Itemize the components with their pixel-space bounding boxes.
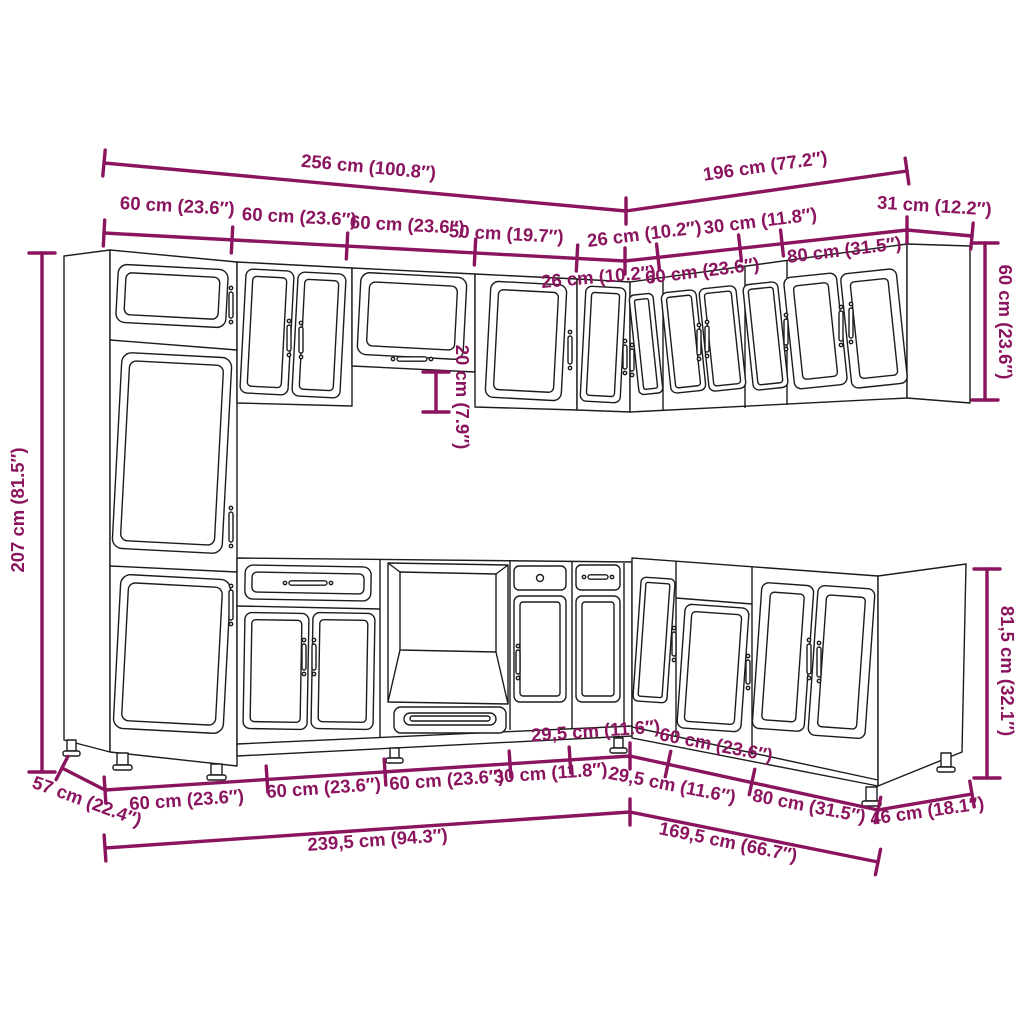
dim-label-base-height-right: 81,5 cm (32.1″) [997, 606, 1018, 736]
cabinet-leg [386, 748, 403, 763]
door-handle [229, 286, 233, 323]
dim-label-wall-height-right: 60 cm (23.6″) [995, 265, 1016, 380]
dim-line-tall-height [29, 253, 55, 772]
cabinet-leg [113, 753, 132, 770]
dim-label-base-60-a: 60 cm (23.6″) [129, 785, 245, 814]
base-cabinet-right-side [878, 564, 966, 786]
door-handle [807, 638, 811, 679]
oven-cavity-back [400, 572, 496, 652]
tall-top-door [116, 264, 229, 328]
cabinet-leg [207, 764, 226, 780]
dim-line-wall-gap [423, 372, 449, 412]
dim-line-base-height-right [974, 569, 1000, 778]
base-60a-door-left [243, 612, 309, 729]
door-handle [568, 330, 572, 369]
kitchen-cabinet-dimension-diagram: 256 cm (100.8″)196 cm (77.2″)60 cm (23.6… [0, 0, 1024, 1024]
door-handle [302, 638, 306, 675]
door-handle [229, 506, 233, 547]
oven-drawer-slot-bar [410, 716, 490, 721]
diagram-canvas: 256 cm (100.8″)196 cm (77.2″)60 cm (23.6… [0, 0, 1024, 1024]
dim-label-wall-gap: 20 cm (7.9″) [452, 345, 473, 450]
door-handle [839, 305, 843, 346]
wall-cabinet-right-side [907, 244, 970, 403]
tall-middle-door [112, 352, 232, 553]
base-60R-door [677, 604, 749, 732]
door-handle [516, 644, 520, 679]
dim-label-run-left-total: 256 cm (100.8″) [300, 150, 437, 183]
door-handle [746, 654, 750, 689]
dim-label-wall-60-b: 60 cm (23.6″) [241, 203, 357, 230]
dim-label-base-total-right: 169,5 cm (66.7″) [657, 817, 799, 866]
door-handle [784, 313, 788, 350]
base-295L-door [576, 596, 620, 702]
wall-26L-door [580, 286, 626, 403]
door-handle [697, 323, 701, 360]
wall-60a-door-left [240, 269, 294, 395]
door-handle [299, 321, 303, 358]
dim-label-run-right-total: 196 cm (77.2″) [702, 146, 829, 184]
drawer-knob [537, 575, 544, 582]
door-handle [817, 641, 821, 682]
wall-60b-flap-door [357, 272, 467, 359]
dim-label-wall-60-a: 60 cm (23.6″) [119, 192, 235, 219]
dim-label-wall-50: 50 cm (19.7″) [448, 220, 564, 247]
dim-label-base-depth-right: 46 cm (18.1″) [869, 792, 986, 829]
door-handle [672, 626, 676, 661]
base-80-door-left [752, 582, 814, 731]
door-handle [229, 584, 233, 625]
drawer-handle [391, 357, 432, 361]
dim-label-wall-26-right: 26 cm (10.2″) [586, 216, 703, 251]
door-handle [623, 339, 627, 374]
cabinet-linework [63, 244, 970, 806]
dim-label-base-295-right: 29,5 cm (11.6″) [607, 762, 738, 807]
door-handle [312, 638, 316, 675]
wall-80-door-left [783, 273, 847, 390]
dim-label-base-80: 80 cm (31.5″) [751, 784, 868, 827]
door-handle [849, 302, 853, 343]
dim-line-wall-height-right [972, 243, 998, 400]
base-60a-door-right [311, 612, 375, 729]
dim-label-wall-30: 30 cm (11.8″) [702, 203, 817, 238]
door-handle [705, 320, 709, 357]
cabinet-leg [610, 738, 627, 753]
dim-label-tall-height: 207 cm (81.5″) [7, 447, 28, 572]
dim-label-base-total-left: 239,5 cm (94.3″) [307, 824, 449, 855]
drawer-handle [283, 581, 332, 585]
tall-bottom-door [113, 574, 231, 734]
dim-label-wall-depth: 31 cm (12.2″) [876, 192, 992, 220]
tall-cabinet-side [64, 250, 110, 752]
door-handle [287, 319, 291, 356]
base-30-door [514, 596, 566, 702]
wall-50-door [485, 281, 567, 401]
